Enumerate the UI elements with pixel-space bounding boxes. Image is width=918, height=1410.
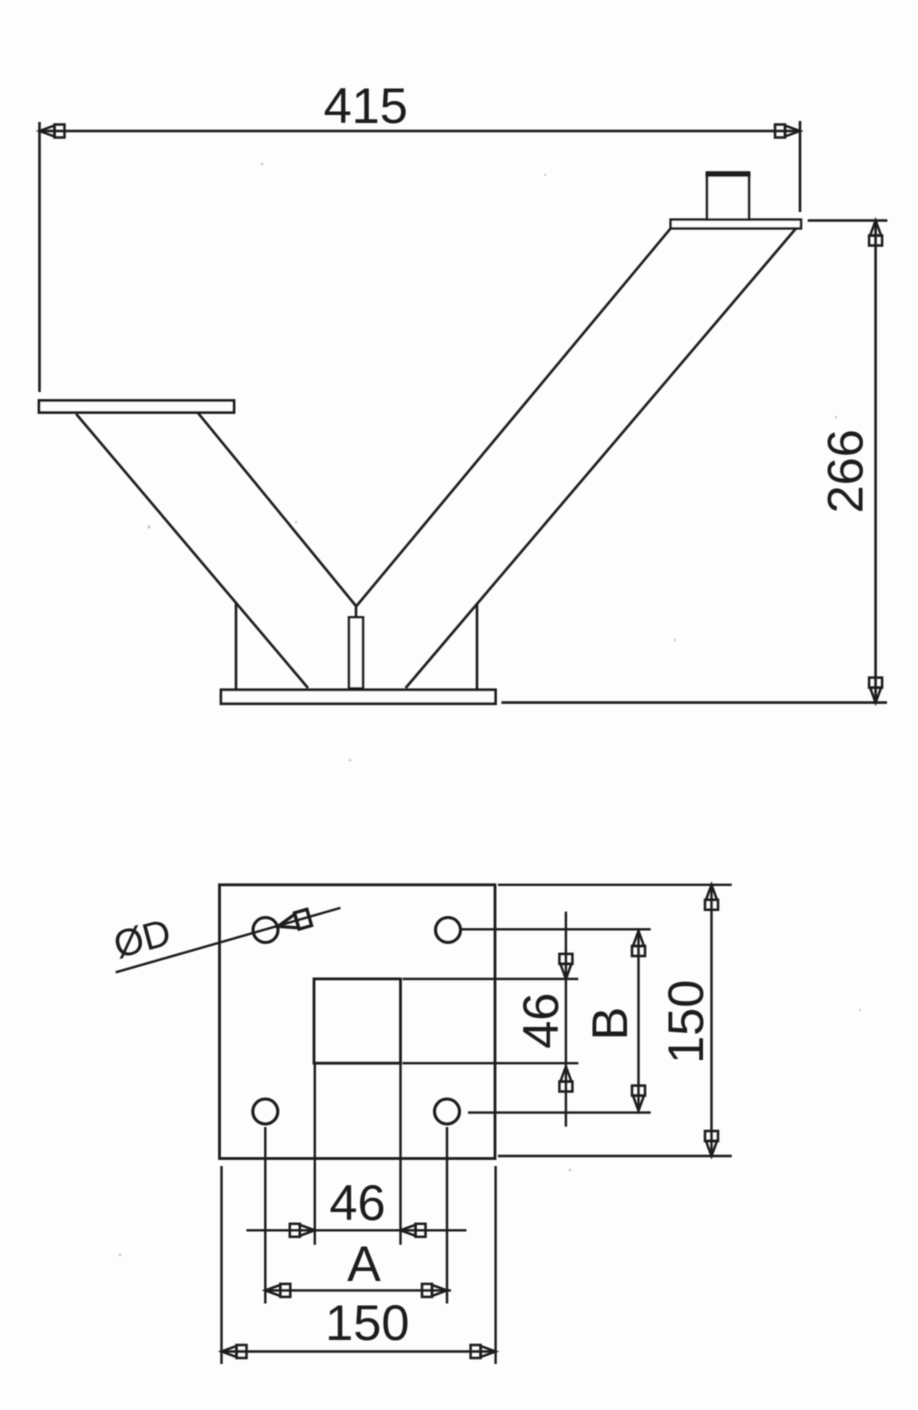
svg-text:150: 150 [657, 980, 714, 1064]
svg-text:46: 46 [512, 993, 569, 1049]
svg-text:415: 415 [324, 77, 408, 134]
svg-text:A: A [347, 1235, 381, 1292]
svg-text:266: 266 [817, 429, 874, 513]
svg-text:B: B [581, 1007, 638, 1041]
svg-text:150: 150 [325, 1294, 409, 1351]
svg-text:46: 46 [329, 1174, 385, 1231]
